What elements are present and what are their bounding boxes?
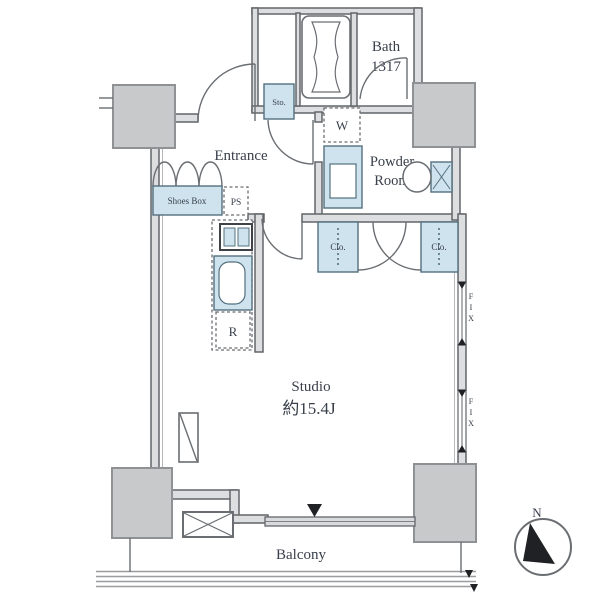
column-bottom-left — [112, 468, 172, 538]
entrance-label: Entrance — [214, 148, 268, 164]
washer-label: W — [336, 118, 349, 133]
kitchen-sink — [214, 256, 252, 310]
vanity-sink — [330, 164, 356, 198]
floor-plan: Bath 1317 Sto. W Powder Room Entrance Sh… — [0, 0, 600, 600]
storage-label: Sto. — [272, 97, 285, 107]
powder-door-arc — [268, 120, 313, 164]
bath-room: Bath 1317 Sto. — [264, 16, 407, 119]
fix-window-lower: FIX — [458, 390, 474, 452]
kitchen-counter: R — [212, 220, 252, 350]
shoes-box-label: Shoes Box — [168, 196, 207, 206]
studio-size-label: 約15.4J — [282, 399, 336, 418]
studio-label: Studio — [291, 379, 330, 395]
entrance-door-arc — [198, 64, 255, 121]
balcony-label: Balcony — [276, 547, 326, 563]
fix-upper-label: FIX — [468, 292, 474, 323]
stove — [220, 224, 252, 250]
north-arrow-icon — [523, 523, 555, 564]
closet-right-label: Clo. — [431, 242, 446, 252]
fix-lower-label: FIX — [468, 397, 474, 428]
shoes-box-door-arcs — [153, 162, 222, 187]
duct-space — [179, 413, 198, 462]
compass: N — [515, 505, 571, 575]
column-top-right — [413, 83, 475, 147]
refrigerator-label: R — [229, 324, 238, 339]
column-bottom-right — [414, 464, 476, 542]
studio-door-arc — [262, 219, 302, 259]
toilet — [403, 162, 452, 192]
bath-label: Bath — [372, 39, 401, 55]
closets: Clo. Clo. — [318, 222, 458, 272]
equipment-box — [183, 512, 233, 537]
compass-north-label: N — [532, 505, 542, 520]
fix-window-upper: FIX — [458, 282, 474, 345]
entry-marker-icon — [307, 504, 322, 517]
bathtub-inner — [312, 22, 340, 92]
closet-left-label: Clo. — [330, 242, 345, 252]
column-top-left — [113, 85, 175, 148]
closet-door-arc-right — [373, 222, 421, 270]
pipe-shaft-label: PS — [231, 198, 242, 208]
closet-door-arc-left — [358, 222, 406, 270]
